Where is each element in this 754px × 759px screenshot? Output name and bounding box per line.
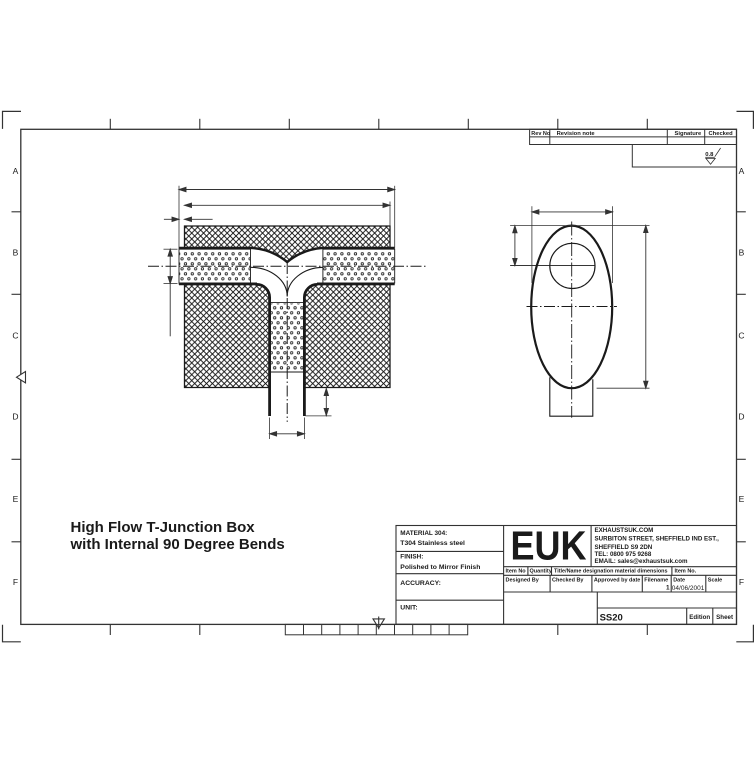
svg-text:T304 Stainless steel: T304 Stainless steel <box>400 540 465 547</box>
svg-text:1: 1 <box>666 585 670 592</box>
svg-text:Checked By: Checked By <box>552 578 584 584</box>
svg-text:Designed By: Designed By <box>506 578 540 584</box>
svg-text:EXHAUSTSUK.COM: EXHAUSTSUK.COM <box>595 527 654 534</box>
svg-text:E: E <box>13 494 19 504</box>
svg-text:F: F <box>739 577 744 587</box>
svg-text:SS20: SS20 <box>600 613 623 624</box>
svg-text:Revision note: Revision note <box>557 131 596 137</box>
svg-text:Sheet: Sheet <box>716 614 733 621</box>
svg-text:A: A <box>13 166 19 176</box>
svg-text:D: D <box>738 412 744 422</box>
svg-text:EUK: EUK <box>511 523 587 569</box>
svg-text:Approved by date: Approved by date <box>594 578 640 584</box>
svg-text:Polished to Mirror Finish: Polished to Mirror Finish <box>400 564 480 571</box>
svg-text:F: F <box>13 577 18 587</box>
svg-text:B: B <box>739 248 745 258</box>
svg-text:Date: Date <box>673 578 685 584</box>
svg-text:Rev No: Rev No <box>531 131 551 137</box>
svg-text:Item No.: Item No. <box>675 569 697 575</box>
svg-text:Signature: Signature <box>675 131 703 137</box>
svg-text:Item No: Item No <box>506 569 527 575</box>
svg-text:with Internal 90 Degree Bends: with Internal 90 Degree Bends <box>70 536 285 553</box>
svg-text:A: A <box>739 166 745 176</box>
svg-text:TEL: 0800 975 9268: TEL: 0800 975 9268 <box>595 551 652 558</box>
svg-text:04/06/2001: 04/06/2001 <box>672 585 705 592</box>
svg-text:MATERIAL 304:: MATERIAL 304: <box>400 530 447 537</box>
svg-text:C: C <box>12 330 18 340</box>
svg-text:Title/Name designation materia: Title/Name designation material dimensio… <box>554 569 668 575</box>
svg-text:B: B <box>13 248 19 258</box>
svg-text:Checked: Checked <box>709 131 734 137</box>
svg-text:Filename: Filename <box>644 578 668 584</box>
svg-text:Quantity: Quantity <box>530 569 553 575</box>
svg-text:ACCURACY:: ACCURACY: <box>400 580 441 587</box>
svg-text:E: E <box>739 494 745 504</box>
svg-text:High Flow T-Junction Box: High Flow T-Junction Box <box>71 519 256 536</box>
svg-text:C: C <box>738 330 744 340</box>
svg-text:Edition: Edition <box>689 614 710 621</box>
svg-text:SURBITON STREET, SHEFFIELD IND: SURBITON STREET, SHEFFIELD IND EST., <box>595 536 720 543</box>
svg-text:FINISH:: FINISH: <box>400 554 423 561</box>
svg-text:Scale: Scale <box>708 578 722 584</box>
svg-text:UNIT:: UNIT: <box>400 604 417 611</box>
svg-text:D: D <box>12 412 18 422</box>
svg-text:SHEFFIELD S9 2DN: SHEFFIELD S9 2DN <box>595 544 653 551</box>
svg-text:EMAIL: sales@exhaustsuk.com: EMAIL: sales@exhaustsuk.com <box>595 558 689 565</box>
